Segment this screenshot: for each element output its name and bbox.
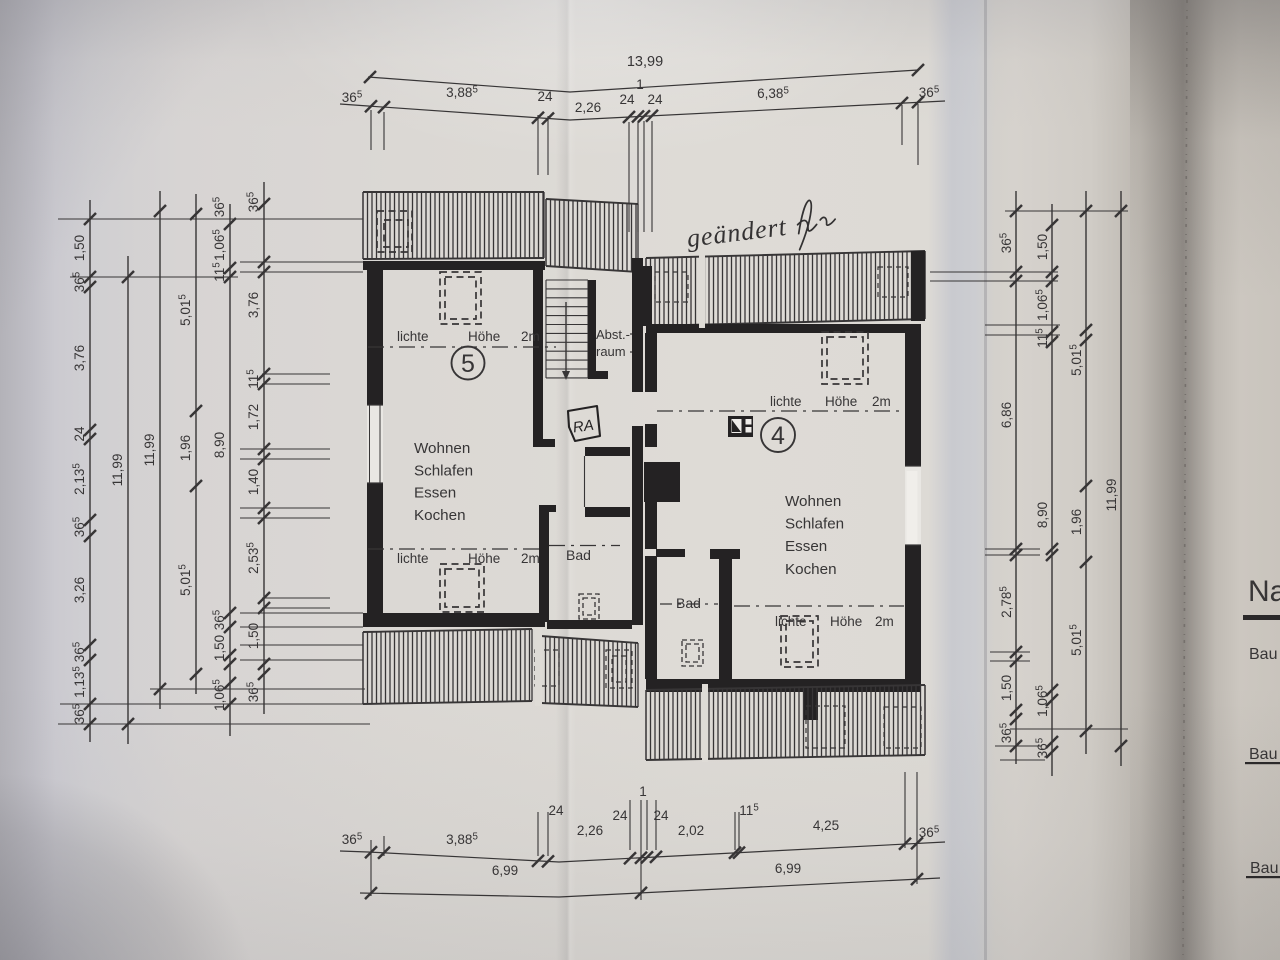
svg-text:1,50: 1,50	[999, 675, 1014, 701]
svg-text:1: 1	[639, 784, 647, 799]
svg-text:lichte: lichte	[770, 394, 802, 409]
svg-text:365: 365	[1035, 738, 1051, 758]
svg-text:8,90: 8,90	[212, 432, 227, 458]
svg-text:365: 365	[342, 832, 362, 848]
svg-text:365: 365	[919, 825, 939, 841]
svg-text:24: 24	[612, 808, 628, 823]
svg-text:Höhe: Höhe	[468, 329, 500, 344]
svg-text:RA: RA	[572, 417, 595, 437]
svg-text:4,25: 4,25	[813, 818, 839, 833]
svg-text:24: 24	[72, 426, 87, 442]
svg-text:2,785: 2,785	[999, 586, 1015, 618]
svg-text:365: 365	[212, 610, 228, 630]
svg-text:115: 115	[1035, 328, 1051, 347]
svg-text:Bad: Bad	[566, 547, 591, 563]
svg-text:Kochen: Kochen	[414, 507, 466, 524]
svg-text:24: 24	[647, 92, 663, 107]
svg-text:Höhe: Höhe	[830, 614, 862, 629]
svg-text:11,99: 11,99	[110, 454, 125, 487]
svg-text:5,015: 5,015	[178, 294, 194, 326]
svg-text:6,86: 6,86	[999, 402, 1014, 428]
svg-text:Bau: Bau	[1250, 860, 1278, 877]
svg-text:365: 365	[72, 517, 88, 537]
svg-text:365: 365	[212, 197, 228, 217]
svg-text:1,96: 1,96	[1069, 509, 1084, 535]
svg-text:1,065: 1,065	[212, 679, 228, 711]
svg-text:3,885: 3,885	[446, 85, 478, 101]
svg-text:5,015: 5,015	[1069, 344, 1085, 376]
svg-text:6,99: 6,99	[492, 863, 518, 878]
svg-text:115: 115	[246, 369, 262, 388]
svg-text:Bau: Bau	[1249, 746, 1277, 763]
svg-text:2,26: 2,26	[577, 823, 603, 838]
svg-text:2,26: 2,26	[575, 100, 601, 115]
svg-text:2,135: 2,135	[72, 463, 88, 495]
svg-text:Wohnen: Wohnen	[414, 440, 470, 457]
svg-text:365: 365	[246, 682, 262, 702]
svg-text:115: 115	[212, 262, 228, 281]
svg-text:365: 365	[72, 272, 88, 292]
svg-text:Höhe: Höhe	[468, 551, 500, 566]
svg-text:4: 4	[771, 422, 785, 450]
svg-text:5: 5	[461, 350, 475, 378]
svg-text:Schlafen: Schlafen	[414, 462, 473, 479]
svg-text:115: 115	[739, 803, 758, 819]
svg-text:2m: 2m	[521, 329, 540, 344]
svg-text:3,76: 3,76	[72, 345, 87, 371]
svg-text:Schlafen: Schlafen	[785, 516, 844, 533]
svg-text:11,99: 11,99	[1104, 479, 1119, 512]
svg-text:1,72: 1,72	[246, 404, 261, 430]
svg-text:Wohnen: Wohnen	[785, 493, 841, 510]
svg-text:Na: Na	[1248, 575, 1280, 608]
svg-text:365: 365	[246, 192, 262, 212]
svg-text:Höhe: Höhe	[825, 394, 857, 409]
svg-text:11,99: 11,99	[142, 434, 157, 467]
svg-text:365: 365	[72, 642, 88, 662]
svg-text:365: 365	[342, 90, 362, 106]
svg-text:1,065: 1,065	[1035, 289, 1051, 321]
svg-text:Essen: Essen	[785, 538, 827, 555]
svg-text:24: 24	[537, 89, 553, 104]
svg-text:365: 365	[72, 704, 88, 724]
svg-text:2m: 2m	[521, 551, 540, 566]
svg-text:lichte: lichte	[397, 551, 429, 566]
svg-text:3,26: 3,26	[72, 577, 87, 603]
svg-text:Bau: Bau	[1249, 646, 1277, 663]
svg-text:365: 365	[999, 723, 1015, 743]
svg-text:geändert: geändert	[685, 212, 788, 253]
svg-text:1,065: 1,065	[212, 229, 228, 261]
svg-text:13,99: 13,99	[627, 54, 663, 70]
svg-text:5,015: 5,015	[1069, 624, 1085, 656]
svg-text:6,99: 6,99	[775, 861, 801, 876]
svg-text:1,50: 1,50	[212, 635, 227, 661]
svg-text:lichte: lichte	[397, 329, 429, 344]
svg-text:3,76: 3,76	[246, 292, 261, 318]
svg-text:Abst.-: Abst.-	[596, 327, 630, 342]
svg-text:24: 24	[548, 803, 564, 818]
svg-text:raum: raum	[596, 344, 626, 359]
svg-text:2m: 2m	[872, 394, 891, 409]
svg-text:1,50: 1,50	[1035, 234, 1050, 260]
svg-text:Kochen: Kochen	[785, 561, 837, 578]
svg-text:2,535: 2,535	[246, 542, 262, 574]
svg-text:Bad: Bad	[676, 595, 701, 611]
svg-text:Essen: Essen	[414, 485, 456, 502]
svg-text:1,135: 1,135	[72, 666, 88, 698]
svg-text:365: 365	[999, 233, 1015, 253]
svg-text:24: 24	[653, 808, 669, 823]
svg-text:2m: 2m	[875, 614, 894, 629]
svg-text:5,015: 5,015	[178, 564, 194, 596]
svg-text:24: 24	[619, 92, 635, 107]
svg-text:2,02: 2,02	[678, 823, 704, 838]
svg-text:1,40: 1,40	[246, 469, 261, 495]
svg-text:3,885: 3,885	[446, 832, 478, 848]
svg-text:1: 1	[636, 77, 644, 92]
svg-text:1,065: 1,065	[1035, 685, 1051, 717]
svg-text:365: 365	[919, 85, 939, 101]
svg-text:8,90: 8,90	[1035, 502, 1050, 528]
svg-text:1,96: 1,96	[178, 435, 193, 461]
svg-text:1,50: 1,50	[72, 235, 87, 261]
svg-text:6,385: 6,385	[757, 86, 789, 102]
